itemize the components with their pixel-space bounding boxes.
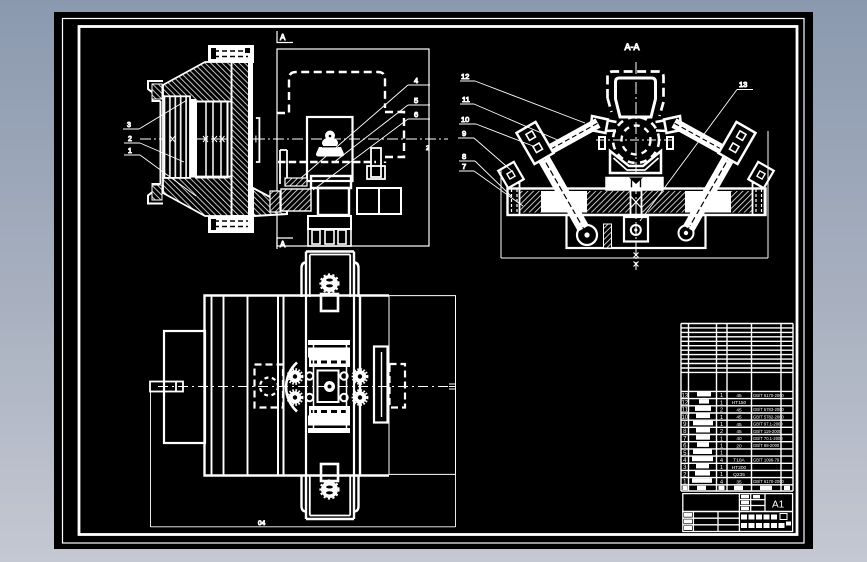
svg-text:1: 1 bbox=[720, 422, 723, 428]
svg-text:GB/T 5782-2000: GB/T 5782-2000 bbox=[753, 414, 785, 419]
svg-text:1: 1 bbox=[128, 148, 132, 155]
svg-text:A: A bbox=[280, 33, 286, 42]
svg-text:A1: A1 bbox=[772, 500, 785, 511]
svg-text:35: 35 bbox=[736, 479, 742, 485]
svg-text:13: 13 bbox=[681, 393, 688, 399]
svg-text:8: 8 bbox=[462, 152, 466, 161]
svg-text:GB/T 5783-2000: GB/T 5783-2000 bbox=[753, 407, 785, 412]
svg-text:40: 40 bbox=[736, 436, 742, 442]
svg-text:20: 20 bbox=[736, 443, 742, 449]
svg-text:1: 1 bbox=[720, 472, 723, 478]
svg-text:11: 11 bbox=[682, 408, 689, 414]
svg-text:9: 9 bbox=[462, 129, 466, 138]
svg-text:A: A bbox=[280, 240, 286, 249]
svg-text:T10A: T10A bbox=[733, 458, 745, 464]
svg-text:7: 7 bbox=[462, 162, 466, 171]
svg-text:12: 12 bbox=[681, 401, 688, 407]
svg-text:11: 11 bbox=[462, 95, 470, 104]
svg-text:1: 1 bbox=[720, 465, 723, 471]
svg-text:GB/T 97.1-2000: GB/T 97.1-2000 bbox=[753, 422, 783, 427]
svg-text:45: 45 bbox=[736, 393, 742, 399]
svg-text:10: 10 bbox=[461, 115, 469, 124]
svg-text:GB/T 119-2000: GB/T 119-2000 bbox=[753, 429, 782, 434]
svg-text:4: 4 bbox=[720, 458, 723, 464]
svg-text:13: 13 bbox=[739, 80, 747, 89]
svg-text:10: 10 bbox=[681, 415, 688, 421]
svg-text:Q235: Q235 bbox=[733, 472, 745, 478]
svg-text:1: 1 bbox=[720, 444, 723, 450]
svg-text:2: 2 bbox=[128, 136, 132, 143]
svg-text:1: 1 bbox=[720, 400, 723, 406]
svg-text:GB/T 70.1-2000: GB/T 70.1-2000 bbox=[753, 436, 783, 441]
svg-text:GB/T 1096-79: GB/T 1096-79 bbox=[753, 458, 780, 463]
svg-text:45: 45 bbox=[736, 429, 742, 435]
svg-text:04: 04 bbox=[258, 520, 266, 527]
svg-text:45: 45 bbox=[736, 407, 742, 413]
svg-text:12: 12 bbox=[461, 72, 469, 81]
svg-text:1: 1 bbox=[720, 415, 723, 421]
svg-text:45: 45 bbox=[736, 415, 742, 421]
svg-text:2: 2 bbox=[720, 429, 723, 435]
svg-text:4: 4 bbox=[414, 76, 418, 85]
svg-text:GB/T 6170-2000: GB/T 6170-2000 bbox=[753, 479, 785, 484]
svg-text:A-A: A-A bbox=[624, 42, 639, 52]
svg-text:6: 6 bbox=[414, 110, 418, 119]
svg-text:HT200: HT200 bbox=[732, 465, 747, 471]
svg-text:4: 4 bbox=[720, 479, 723, 485]
svg-text:1: 1 bbox=[720, 451, 723, 457]
svg-text:1: 1 bbox=[720, 436, 723, 442]
svg-text:2: 2 bbox=[720, 408, 723, 414]
svg-text:GB/T 68-2000: GB/T 68-2000 bbox=[753, 443, 780, 448]
svg-text:GB/T 6170-2000: GB/T 6170-2000 bbox=[753, 393, 785, 398]
svg-text:5: 5 bbox=[414, 96, 418, 105]
svg-text:1: 1 bbox=[720, 393, 723, 399]
svg-text:45: 45 bbox=[736, 422, 742, 428]
svg-text:3: 3 bbox=[127, 122, 131, 129]
svg-text:HT150: HT150 bbox=[732, 400, 747, 406]
